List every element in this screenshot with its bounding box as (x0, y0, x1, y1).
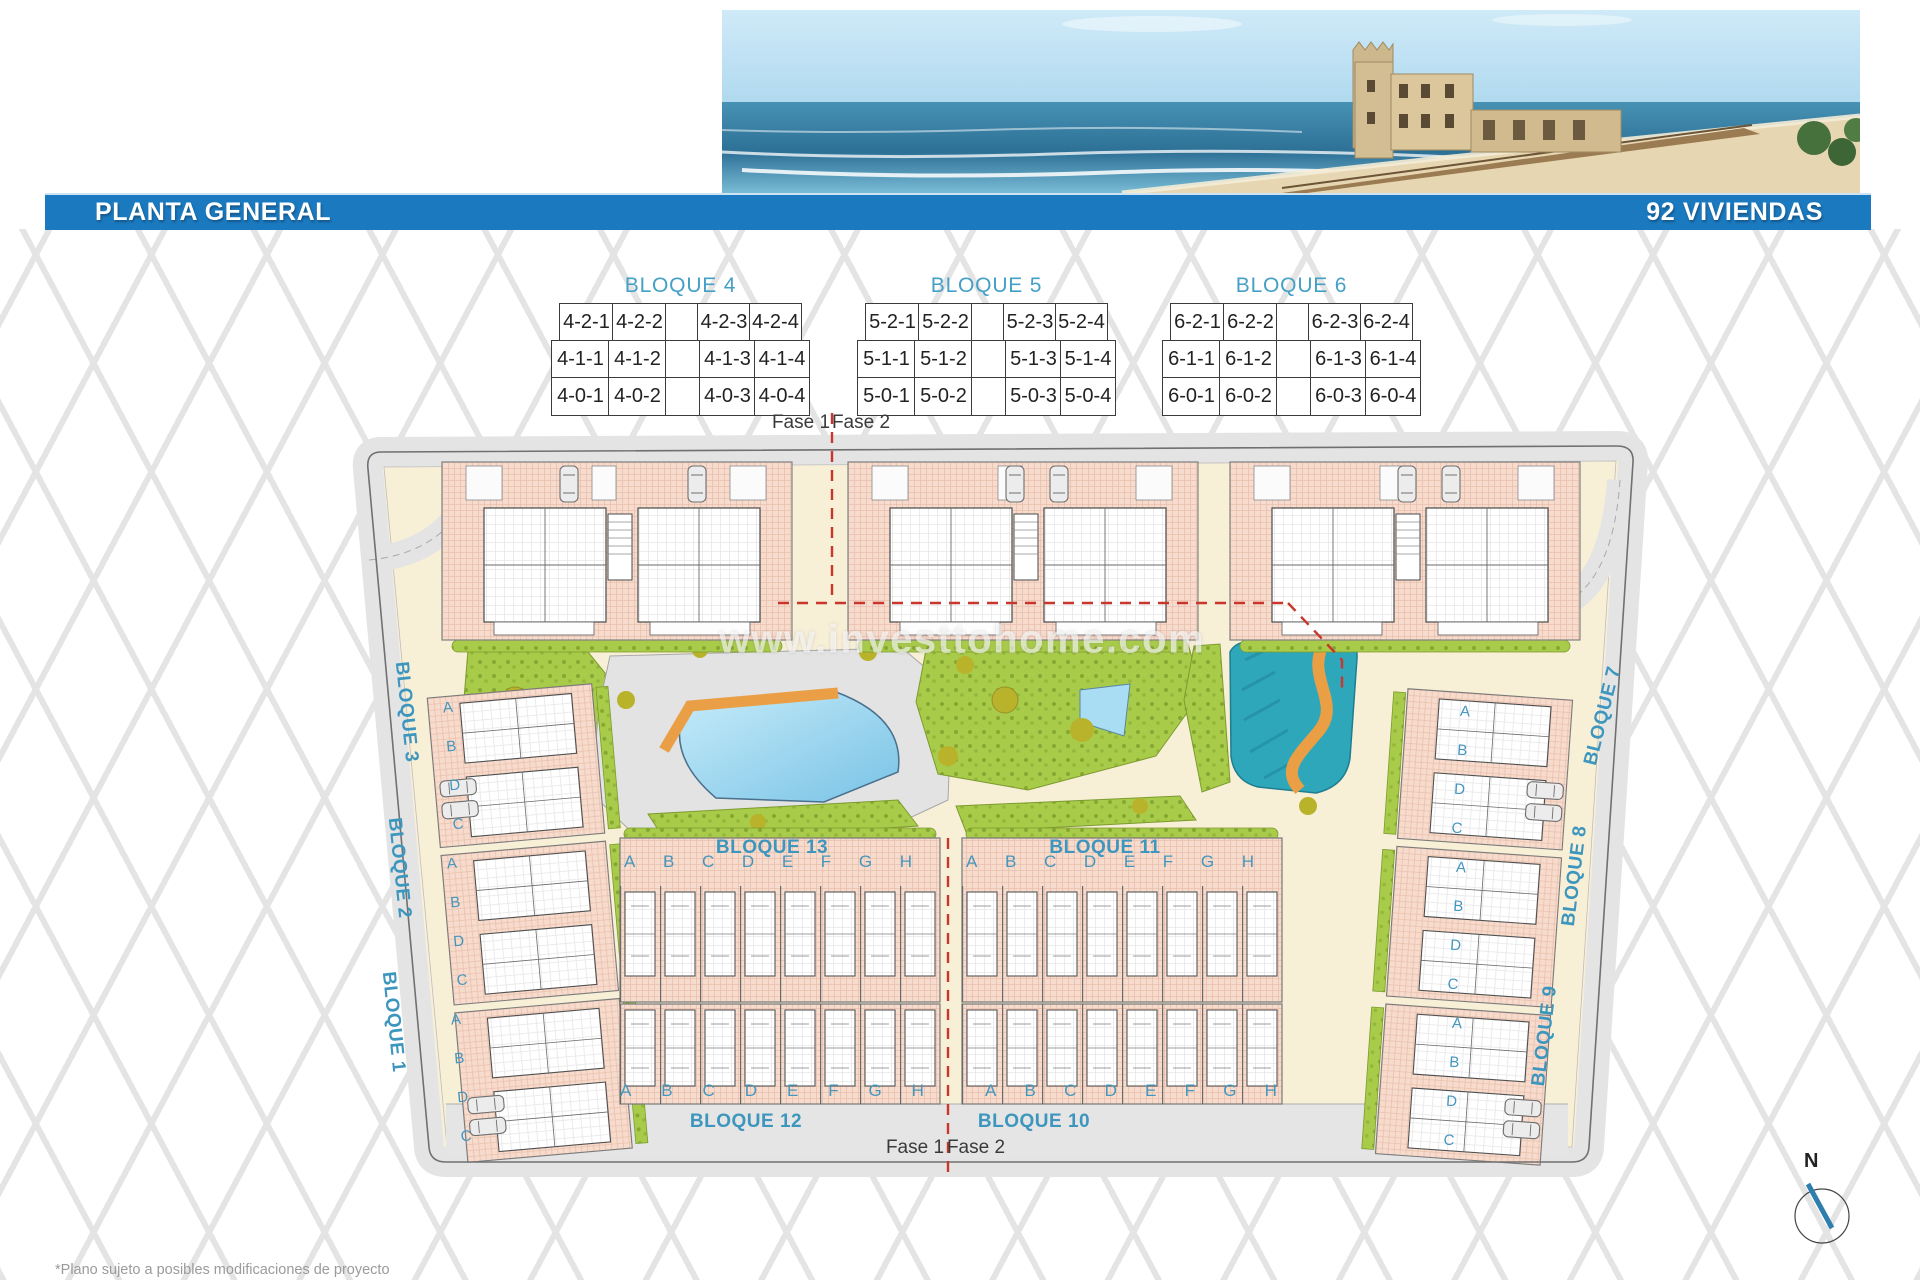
unit-cell: 5-1-3 (1005, 340, 1062, 379)
unit-letter: D (1446, 937, 1465, 953)
unit-cell: 6-1-2 (1219, 340, 1278, 379)
unit-cell: 6-1-3 (1310, 340, 1367, 379)
unit-letter: D (453, 1089, 472, 1106)
table-bloque-5: BLOQUE 5 5-2-15-2-25-2-35-2-4 5-1-15-1-2… (858, 274, 1115, 415)
table-title: BLOQUE 6 (1163, 274, 1420, 298)
table-row: 4-1-14-1-24-1-34-1-4 (552, 341, 809, 378)
unit-cell: 5-1-1 (857, 340, 916, 379)
bloque-12-label: BLOQUE 12 (690, 1111, 802, 1133)
table-title: BLOQUE 4 (552, 274, 809, 298)
unit-cell (1276, 340, 1312, 379)
north-label: N (1804, 1150, 1818, 1173)
compass-circle (1795, 1189, 1849, 1243)
unit-cell: 4-1-1 (551, 340, 610, 379)
unit-letter: A (442, 855, 461, 872)
unit-letter: H (900, 852, 912, 872)
unit-cell (971, 303, 1005, 342)
unit-cell: 6-2-1 (1170, 303, 1225, 342)
unit-letter: H (912, 1081, 924, 1101)
bloque-10-label: BLOQUE 10 (978, 1111, 1090, 1133)
table-row: 4-2-14-2-24-2-34-2-4 (560, 304, 801, 341)
table-row: 6-1-16-1-26-1-36-1-4 (1163, 341, 1420, 378)
unit-cell: 4-2-1 (559, 303, 614, 342)
unit-cell: 5-2-1 (865, 303, 920, 342)
compass-rose: N (1780, 1150, 1870, 1250)
unit-cell: 4-2-4 (749, 303, 802, 342)
unit-letter: E (1145, 1081, 1156, 1101)
site-plan-page: { "banner": {"title": "PLANTA GENERAL", … (0, 0, 1920, 1280)
unit-cell: 6-1-4 (1365, 340, 1421, 379)
unit-letter: C (1044, 852, 1056, 872)
unit-letter: C (456, 1128, 475, 1145)
page-title: PLANTA GENERAL (45, 198, 331, 227)
unit-letter: A (1452, 860, 1471, 876)
unit-cell: 4-1-4 (754, 340, 810, 379)
unit-cell (1276, 303, 1310, 342)
unit-cell: 4-2-3 (697, 303, 751, 342)
unit-cell: 6-2-2 (1223, 303, 1278, 342)
unit-letter: B (1445, 1054, 1464, 1070)
fase-1-label-bottom: Fase 1 (886, 1137, 944, 1159)
unit-letter: D (445, 777, 464, 794)
unit-letter: E (1124, 852, 1135, 872)
unit-cell: 4-1-3 (699, 340, 756, 379)
table-row: 5-2-15-2-25-2-35-2-4 (866, 304, 1107, 341)
unit-letter: B (1005, 852, 1016, 872)
unit-letter: B (1025, 1081, 1036, 1101)
unit-cell: 5-1-2 (914, 340, 973, 379)
unit-cell: 6-2-3 (1308, 303, 1362, 342)
unit-letter: A (620, 1081, 631, 1101)
unit-letter: D (1450, 781, 1469, 797)
unit-cell: 5-1-4 (1060, 340, 1116, 379)
unit-letter: B (1453, 742, 1472, 758)
unit-letter: B (661, 1081, 672, 1101)
palm-trees (1797, 121, 1831, 155)
unit-letter: C (1064, 1081, 1076, 1101)
unit-letter: A (966, 852, 977, 872)
unit-letter: G (1201, 852, 1214, 872)
unit-letter: A (1448, 1016, 1467, 1032)
unit-letter: C (702, 852, 714, 872)
unit-cell: 5-2-4 (1055, 303, 1108, 342)
unit-cell: 6-1-1 (1162, 340, 1221, 379)
dwelling-count: 92 VIVIENDAS (1646, 198, 1823, 227)
unit-letter: G (859, 852, 872, 872)
table-bloque-4: BLOQUE 4 4-2-14-2-24-2-34-2-4 4-1-14-1-2… (552, 274, 809, 415)
unit-cell: 6-2-4 (1360, 303, 1413, 342)
unit-letter: C (452, 972, 471, 989)
unit-cell: 5-2-3 (1003, 303, 1057, 342)
disclaimer-footnote: *Plano sujeto a posibles modificaciones … (55, 1262, 390, 1278)
unit-letter: H (1242, 852, 1254, 872)
unit-letter: C (448, 816, 467, 833)
unit-letter: A (446, 1011, 465, 1028)
unit-cell (665, 303, 699, 342)
unit-letter: D (449, 933, 468, 950)
unit-letter: A (624, 852, 635, 872)
table-bloque-6: BLOQUE 6 6-2-16-2-26-2-36-2-4 6-1-16-1-2… (1163, 274, 1420, 415)
unit-letter: C (1439, 1132, 1458, 1148)
unit-letter: B (450, 1050, 469, 1067)
unit-letter: H (1265, 1081, 1277, 1101)
unit-letter: C (1447, 820, 1466, 836)
unit-letter: F (1185, 1081, 1195, 1101)
unit-letter: C (1443, 976, 1462, 992)
unit-letter: C (703, 1081, 715, 1101)
fase-2-label-top: Fase 2 (832, 412, 890, 434)
fase-2-label-bottom: Fase 2 (947, 1137, 1005, 1159)
bloque-10-unit-letters: ABCDEFGH (985, 1081, 1277, 1101)
unit-letter: D (1442, 1093, 1461, 1109)
unit-cell (665, 340, 701, 379)
unit-cell: 4-2-2 (612, 303, 667, 342)
unit-letter: D (1084, 852, 1096, 872)
title-banner: PLANTA GENERAL 92 VIVIENDAS (45, 193, 1871, 230)
bloque-13-unit-letters: ABCDEFGH (624, 852, 912, 872)
unit-letter: A (985, 1081, 996, 1101)
unit-cell: 4-1-2 (608, 340, 667, 379)
unit-letter: A (1456, 704, 1475, 720)
unit-letter: D (742, 852, 754, 872)
unit-letter: E (787, 1081, 798, 1101)
unit-letter: E (782, 852, 793, 872)
bloque-12-unit-letters: ABCDEFGH (620, 1081, 924, 1101)
unit-letter: A (438, 699, 457, 716)
unit-letter: D (745, 1081, 757, 1101)
unit-cell: 5-2-2 (918, 303, 973, 342)
unit-letter: B (442, 738, 461, 755)
unit-letter: F (821, 852, 831, 872)
unit-letter: G (869, 1081, 882, 1101)
unit-letter: F (828, 1081, 838, 1101)
unit-letter: B (663, 852, 674, 872)
unit-letter: F (1163, 852, 1173, 872)
unit-letter: B (446, 894, 465, 911)
fase-1-label-top: Fase 1 (772, 412, 830, 434)
unit-letter: G (1223, 1081, 1236, 1101)
bloque-11-unit-letters: ABCDEFGH (966, 852, 1254, 872)
table-row: 6-2-16-2-26-2-36-2-4 (1171, 304, 1412, 341)
table-title: BLOQUE 5 (858, 274, 1115, 298)
watermark: www.investtohome.com (719, 618, 1205, 663)
bloque-4-building (442, 462, 792, 640)
beach-photo (722, 10, 1860, 193)
unit-letter: B (1449, 898, 1468, 914)
unit-letter: D (1105, 1081, 1117, 1101)
compass-needle (1808, 1184, 1832, 1228)
unit-cell (971, 340, 1007, 379)
table-row: 5-1-15-1-25-1-35-1-4 (858, 341, 1115, 378)
